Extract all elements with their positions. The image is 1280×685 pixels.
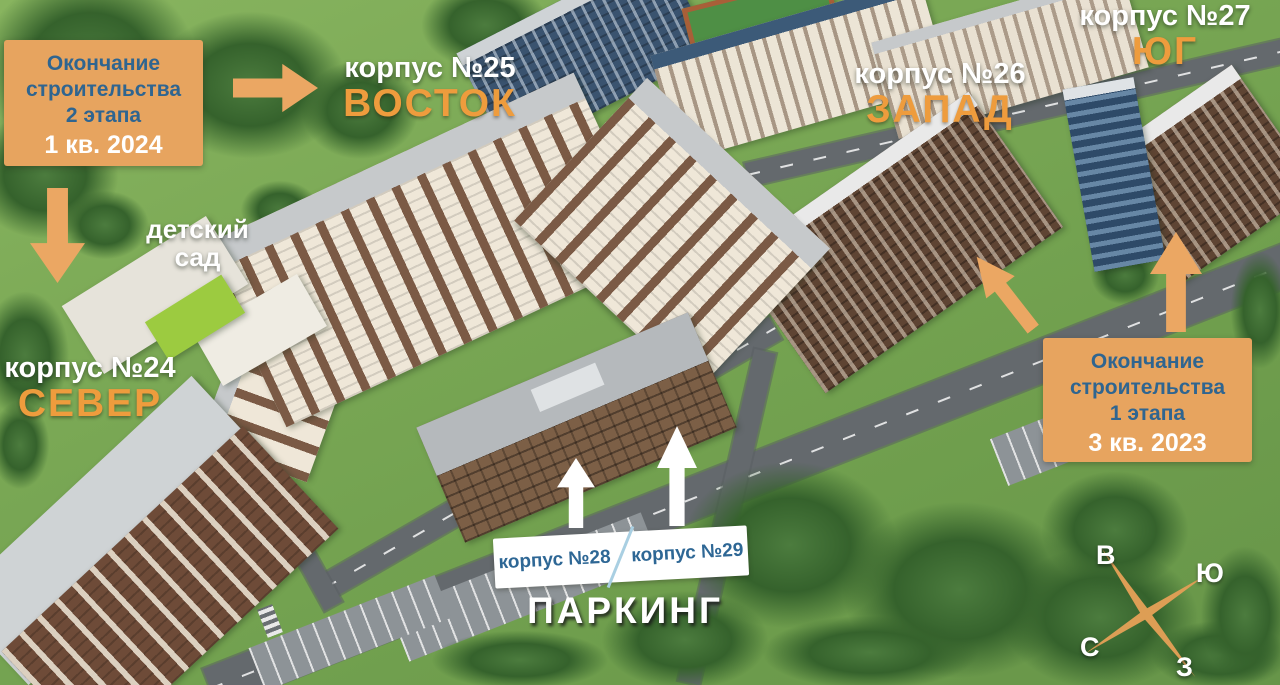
building-24-number: корпус №24 (0, 352, 180, 384)
masterplan-render: Окончание строительства 2 этапа 1 кв. 20… (0, 0, 1280, 685)
tree-cluster (1040, 470, 1190, 590)
tree-cluster (760, 615, 980, 685)
info-box-stage-1: Окончание строительства 1 этапа 3 кв. 20… (1043, 338, 1252, 462)
compass-south-label: Ю (1196, 558, 1224, 589)
building-26-number: корпус №26 (845, 58, 1035, 90)
building-24-name: СЕВЕР (0, 384, 180, 424)
kindergarten-label-line1: детский (130, 215, 265, 243)
info-box-date: 3 кв. 2023 (1043, 427, 1252, 459)
info-box-text: 2 этапа (4, 103, 203, 129)
building-27-glass-tower (1062, 77, 1165, 272)
parking-unit-29-label: корпус №29 (631, 540, 744, 568)
building-25-number: корпус №25 (320, 52, 540, 84)
info-box-text: строительства (4, 77, 203, 103)
info-box-text: 1 этапа (1043, 401, 1252, 427)
compass-north-label: С (1080, 632, 1100, 663)
tree-cluster (430, 630, 610, 685)
parking-title: ПАРКИНГ (475, 590, 775, 632)
label-building-27: корпус №27 ЮГ (1075, 0, 1255, 72)
kindergarten-label-line2: сад (130, 243, 265, 271)
crosswalk (257, 604, 283, 638)
info-box-stage-2: Окончание строительства 2 этапа 1 кв. 20… (4, 40, 203, 166)
parking-unit-28-label: корпус №28 (498, 547, 611, 575)
building-27-name: ЮГ (1075, 32, 1255, 72)
info-box-date: 1 кв. 2024 (4, 129, 203, 161)
parking-roof-panel (531, 363, 605, 412)
label-kindergarten: детский сад (130, 215, 265, 271)
building-27-number: корпус №27 (1075, 0, 1255, 32)
info-box-text: Окончание (4, 51, 203, 77)
compass-east-label: В (1096, 540, 1116, 571)
compass-west-label: З (1176, 652, 1193, 683)
building-26-name: ЗАПАД (845, 90, 1035, 130)
label-building-24: корпус №24 СЕВЕР (0, 352, 180, 424)
info-box-text: Окончание (1043, 349, 1252, 375)
label-building-26: корпус №26 ЗАПАД (845, 58, 1035, 130)
building-25-name: ВОСТОК (320, 84, 540, 124)
info-box-text: строительства (1043, 375, 1252, 401)
label-building-25: корпус №25 ВОСТОК (320, 52, 540, 124)
